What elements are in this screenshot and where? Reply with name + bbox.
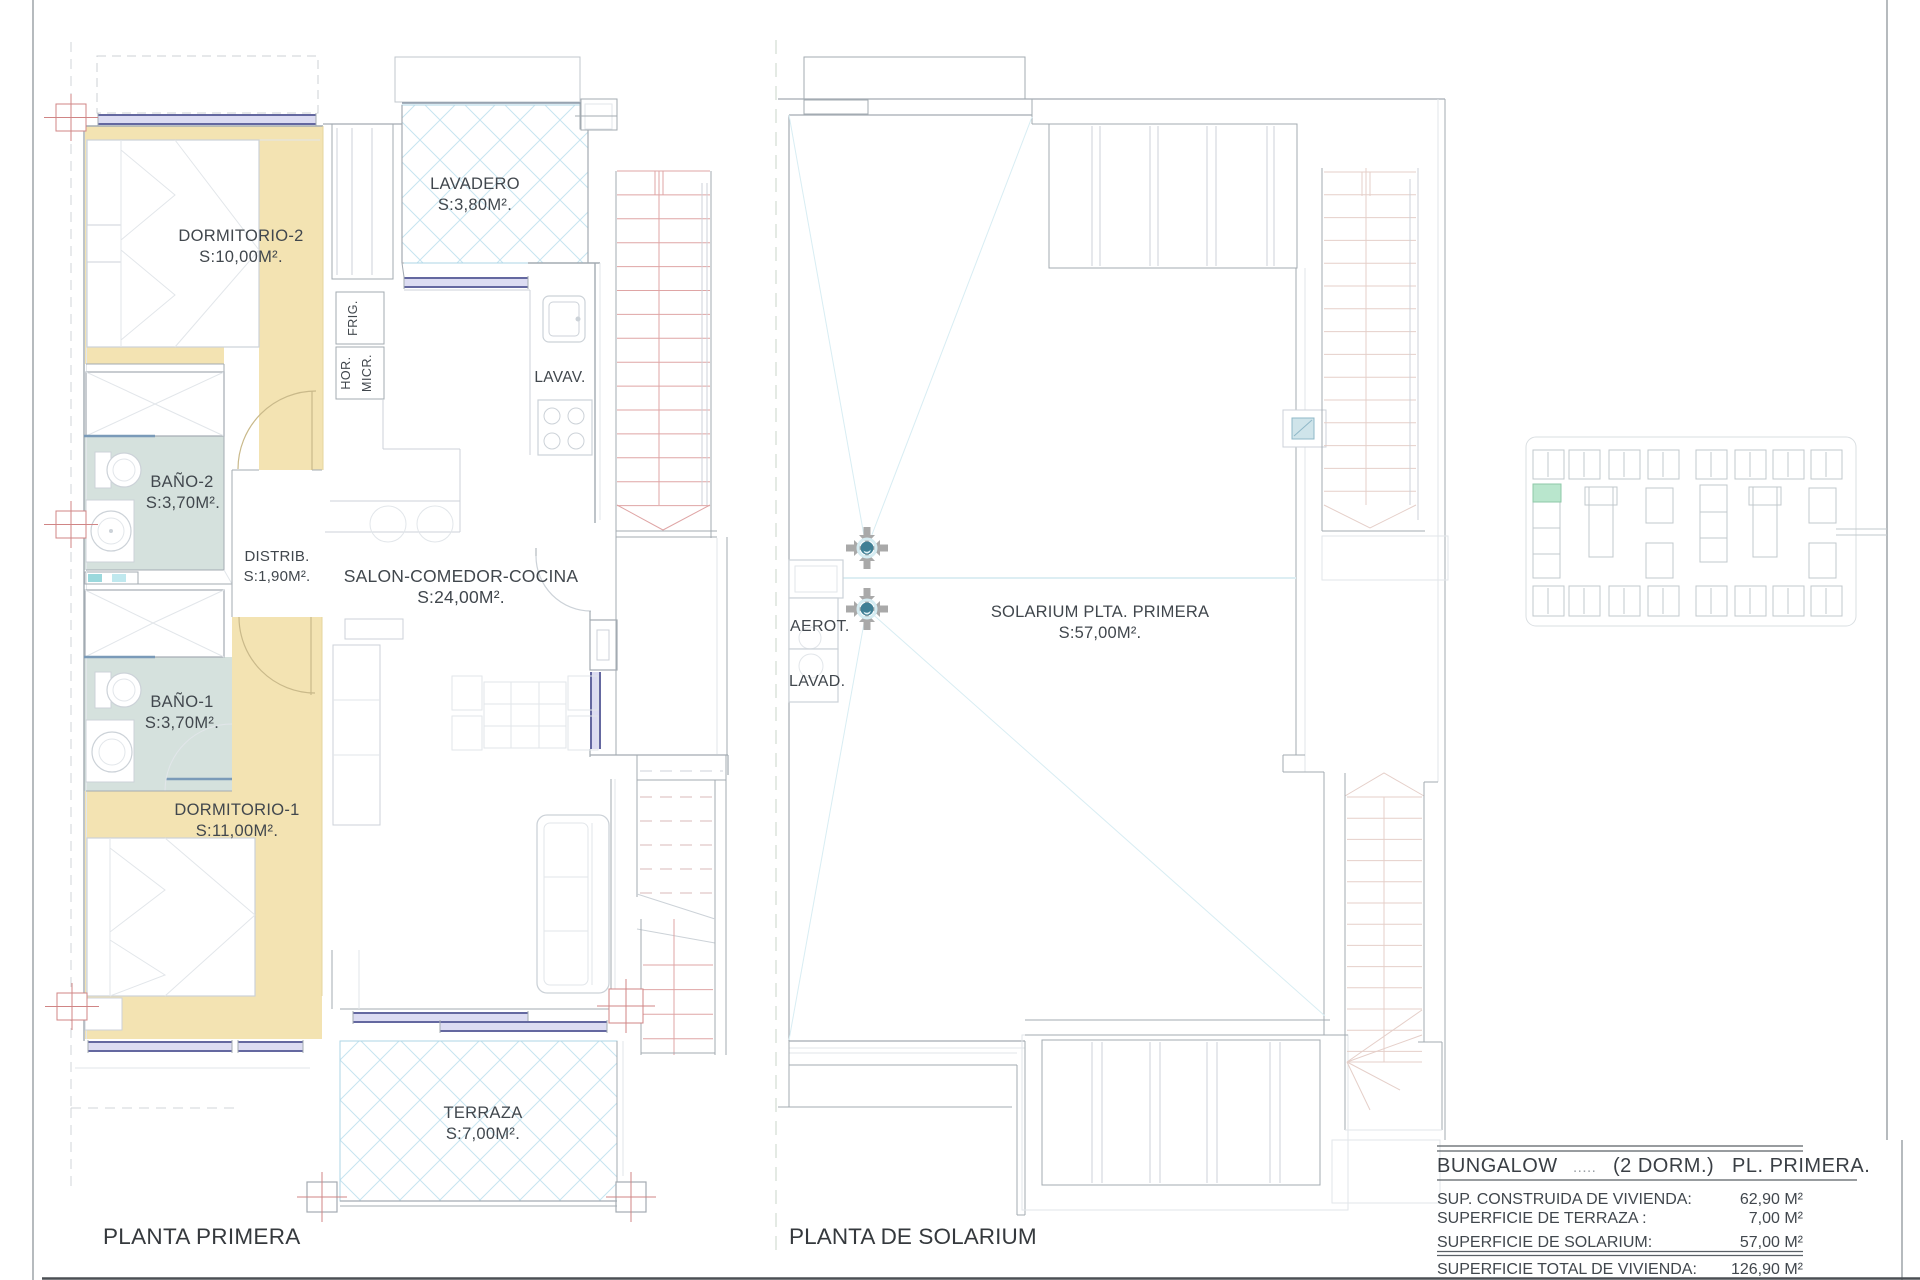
svg-text:PLANTA PRIMERA: PLANTA PRIMERA: [103, 1224, 301, 1249]
svg-text:TERRAZA: TERRAZA: [443, 1104, 522, 1122]
svg-text:DORMITORIO-2: DORMITORIO-2: [178, 227, 303, 245]
svg-text:BUNGALOW: BUNGALOW: [1437, 1155, 1558, 1177]
svg-text:AEROT.: AEROT.: [790, 618, 850, 635]
svg-text:S:1,90M².: S:1,90M².: [244, 568, 311, 585]
svg-text:S:3,80M².: S:3,80M².: [438, 196, 512, 214]
svg-text:.....: .....: [1573, 1159, 1596, 1176]
svg-text:S:10,00M².: S:10,00M².: [199, 248, 283, 266]
svg-text:DORMITORIO-1: DORMITORIO-1: [174, 801, 299, 819]
svg-text:(2 DORM.): (2 DORM.): [1613, 1155, 1714, 1177]
svg-text:LAVADERO: LAVADERO: [430, 175, 520, 193]
svg-text:PL. PRIMERA.: PL. PRIMERA.: [1732, 1155, 1870, 1177]
svg-text:S:11,00M².: S:11,00M².: [196, 822, 278, 840]
svg-text:SUPERFICIE DE SOLARIUM:: SUPERFICIE DE SOLARIUM:: [1437, 1234, 1652, 1251]
svg-text:BAÑO-1: BAÑO-1: [150, 691, 213, 711]
svg-text:LAVAD.: LAVAD.: [789, 673, 845, 690]
svg-text:SUPERFICIE TOTAL DE VIVIENDA:: SUPERFICIE TOTAL DE VIVIENDA:: [1437, 1261, 1697, 1278]
svg-text:SALON-COMEDOR-COCINA: SALON-COMEDOR-COCINA: [344, 566, 579, 586]
svg-text:7,00 M²: 7,00 M²: [1749, 1210, 1804, 1227]
svg-text:DISTRIB.: DISTRIB.: [245, 548, 310, 565]
svg-text:SOLARIUM PLTA. PRIMERA: SOLARIUM PLTA. PRIMERA: [991, 603, 1209, 621]
svg-text:126,90 M²: 126,90 M²: [1731, 1261, 1804, 1278]
svg-text:BAÑO-2: BAÑO-2: [150, 471, 213, 491]
svg-text:FRIG.: FRIG.: [346, 300, 360, 336]
svg-text:SUPERFICIE DE TERRAZA :: SUPERFICIE DE TERRAZA :: [1437, 1210, 1647, 1227]
svg-text:MICR.: MICR.: [360, 354, 374, 392]
svg-text:LAVAV.: LAVAV.: [534, 369, 585, 386]
svg-text:S:24,00M².: S:24,00M².: [417, 587, 505, 607]
svg-text:PLANTA DE SOLARIUM: PLANTA DE SOLARIUM: [789, 1224, 1037, 1249]
svg-text:S:3,70M².: S:3,70M².: [146, 494, 220, 512]
svg-text:57,00 M²: 57,00 M²: [1740, 1234, 1804, 1251]
svg-text:HOR.: HOR.: [339, 356, 353, 389]
svg-text:SUP. CONSTRUIDA DE VIVIENDA:: SUP. CONSTRUIDA DE VIVIENDA:: [1437, 1191, 1692, 1208]
svg-text:S:7,00M².: S:7,00M².: [446, 1125, 520, 1143]
svg-text:S:3,70M².: S:3,70M².: [145, 714, 219, 732]
svg-text:62,90 M²: 62,90 M²: [1740, 1191, 1804, 1208]
svg-text:S:57,00M².: S:57,00M².: [1059, 624, 1142, 642]
